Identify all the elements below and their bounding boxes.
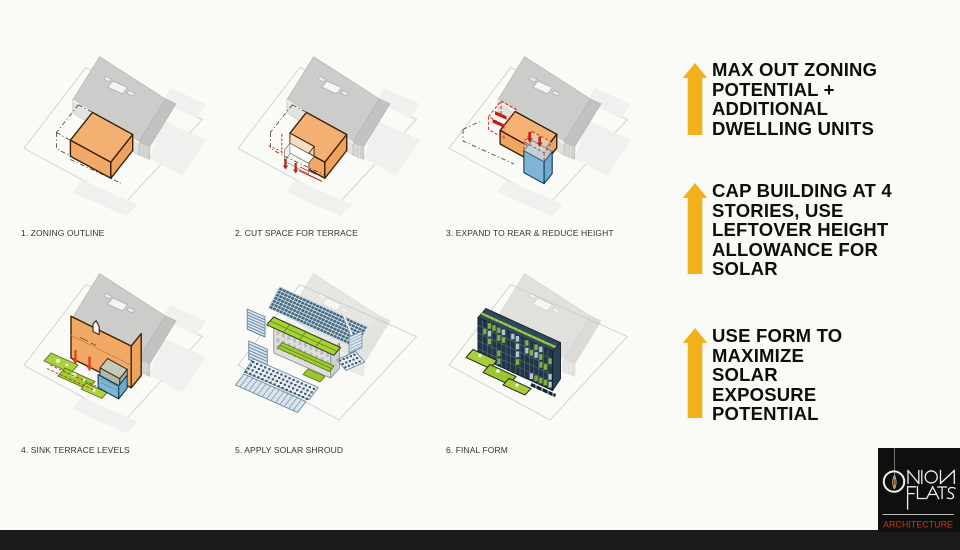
svg-text:ARCHITECTURE: ARCHITECTURE xyxy=(883,520,953,531)
